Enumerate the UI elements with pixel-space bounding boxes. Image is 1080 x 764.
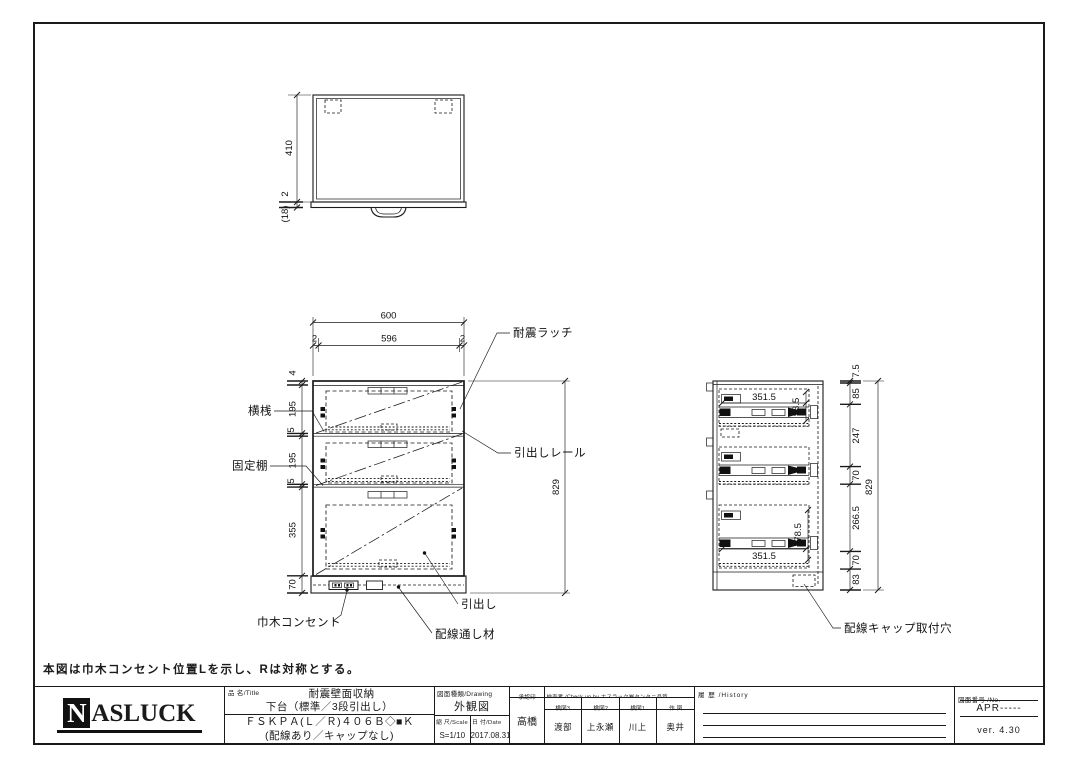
drawing-note: 本図は巾木コンセント位置Lを示し、Rは対称とする。 <box>43 661 360 677</box>
dim-top-lip: 2 <box>280 191 291 196</box>
approval-name: 高橋 <box>510 698 544 743</box>
label-latch: 耐震ラッチ <box>513 327 573 340</box>
history-cell: 履 歴 /History <box>695 687 955 743</box>
scale-value: S=1/10 <box>435 731 470 740</box>
check-name-2: 上永瀬 <box>582 710 618 743</box>
dim-edge-right: 2 <box>460 334 465 345</box>
dim-chain-1: 85 <box>851 388 862 399</box>
check-name-1: 渡部 <box>545 710 581 743</box>
dim-rail-bottom: 351.5 <box>752 551 776 562</box>
dim-chain-0: 7.5 <box>851 364 862 377</box>
label-wiring: 配線通し材 <box>435 627 495 641</box>
side-drawer-2 <box>719 447 818 484</box>
scale-cell: 縮 尺/Scale S=1/10 <box>435 716 471 743</box>
top-view-dimensions: 410 2 (18) <box>279 92 311 222</box>
check-cell: 検査者 /Check up by ナスラック㈱タンタニ品質 検図3 渡部 検図2… <box>545 687 695 743</box>
check-role-3: 検図1 <box>630 703 645 712</box>
cap-hole <box>793 575 815 587</box>
label-outlet: 巾木コンセント <box>257 615 341 629</box>
check-name-4: 奥井 <box>657 710 694 743</box>
outlet-symbol <box>329 581 358 590</box>
product-name: 耐震壁面収納 <box>263 689 434 700</box>
label-fixed-shelf: 固定棚 <box>232 459 268 473</box>
label-rail: 引出しレール <box>514 446 586 460</box>
dim-chain-6: 83 <box>851 574 862 585</box>
logo-cell: NASLUCK <box>35 687 225 743</box>
check-col-1: 検図3 渡部 <box>545 698 582 743</box>
drawing-number-cell: 図面番号 /No. APR----- ver. 4.30 <box>955 687 1043 743</box>
date-header: 日 付/Date <box>472 717 501 726</box>
dim-width-total: 600 <box>381 311 397 322</box>
title-header: 品 名/Title <box>225 691 263 698</box>
drawing-type: 外観図 <box>435 698 509 714</box>
history-line <box>703 725 946 726</box>
history-header: 履 歴 /History <box>698 689 749 699</box>
dim-width-inner: 596 <box>381 334 397 345</box>
product-title-cell: 品 名/Title 耐震壁面収納 下台（標準／3段引出し） ＦＳＫＰＡ(Ｌ／Ｒ)… <box>225 687 435 743</box>
dim-top-height: 410 <box>284 140 295 156</box>
check-col-3: 検図1 川上 <box>620 698 657 743</box>
label-cap-hole: 配線キャップ取付穴 <box>844 621 952 635</box>
product-option: (配線あり／キャップなし) <box>225 729 434 743</box>
check-role-2: 検図2 <box>593 703 608 712</box>
logo-text: ASLUCK <box>91 701 195 726</box>
side-view-dimensions: 351.5 98.5 351.5 178.5 7.5 85 247 <box>719 364 884 593</box>
title-block: NASLUCK 品 名/Title 耐震壁面収納 下台（標準／3段引出し） ＦＳ… <box>33 686 1045 745</box>
history-line <box>703 737 946 738</box>
check-role-1: 検図3 <box>556 703 571 712</box>
check-col-4: 作 図 奥井 <box>657 698 694 743</box>
scale-header: 縮 尺/Scale <box>436 717 468 726</box>
front-view <box>311 381 466 593</box>
dim-drawer1: 195 <box>288 401 299 417</box>
check-name-3: 川上 <box>620 710 656 743</box>
side-view-labels: 配線キャップ取付穴 <box>804 584 952 635</box>
drawing-type-header: 図面種類/Drawing <box>437 688 492 698</box>
drawing-number: APR----- <box>955 701 1043 716</box>
product-code: ＦＳＫＰＡ(Ｌ／Ｒ)４０６Ｂ◇■Ｋ <box>225 715 434 729</box>
drawing-type-cell: 図面種類/Drawing 外観図 縮 尺/Scale S=1/10 日 付/Da… <box>435 687 510 743</box>
dim-top-base: (18) <box>280 206 291 223</box>
dim-chain-2: 247 <box>851 428 862 444</box>
dim-drawer3: 355 <box>288 522 299 538</box>
label-drawer: 引出し <box>461 597 497 611</box>
dim-height-total-side: 829 <box>864 479 875 495</box>
check-col-2: 検図2 上永瀬 <box>582 698 619 743</box>
check-role-4: 作 図 <box>669 703 682 712</box>
wiring-box <box>367 581 383 590</box>
dim-chain-5: 70 <box>851 555 862 566</box>
approval-header: 承認印 <box>518 692 535 701</box>
dim-rail-bottom-h: 178.5 <box>793 523 804 547</box>
dim-chain-3: 70 <box>851 470 862 481</box>
dim-chain-4: 266.5 <box>851 506 862 530</box>
dim-base: 70 <box>288 579 299 590</box>
version: ver. 4.30 <box>955 717 1043 743</box>
product-subname: 下台（標準／3段引出し） <box>225 701 434 715</box>
history-line <box>703 713 946 714</box>
dim-top-panel: 4 <box>288 370 299 375</box>
approval-cell: 承認印 高橋 <box>510 687 545 743</box>
cad-drawing: 410 2 (18) <box>0 0 1080 764</box>
dim-rail-top: 351.5 <box>752 392 776 403</box>
dim-edge-left: 2 <box>312 334 317 345</box>
dim-height-total-front: 829 <box>551 479 562 495</box>
dim-shelf2: 5 <box>286 478 297 483</box>
dim-shelf1: 5 <box>286 427 297 432</box>
logo-initial: N <box>63 698 90 728</box>
label-crossbar: 横桟 <box>248 404 272 418</box>
top-view <box>311 95 466 217</box>
date-cell: 日 付/Date 2017.08.31 <box>471 716 509 743</box>
date-value: 2017.08.31 <box>471 731 509 740</box>
nasluck-logo: NASLUCK <box>57 697 201 733</box>
dim-rail-top-h: 98.5 <box>791 398 802 417</box>
